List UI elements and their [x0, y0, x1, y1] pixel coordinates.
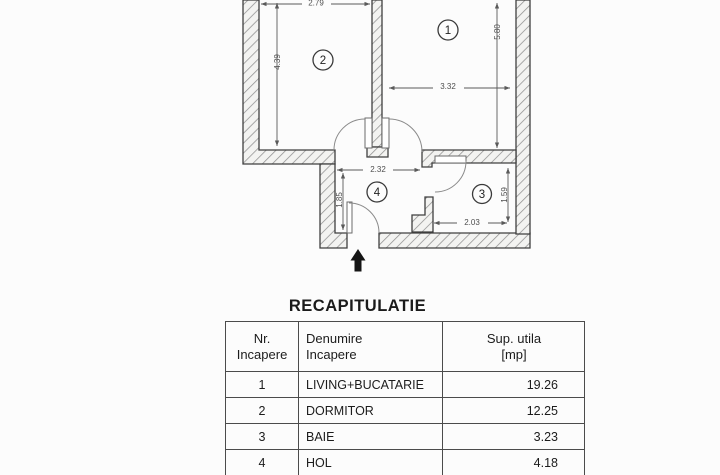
- table-row: 1 LIVING+BUCATARIE 19.26: [226, 372, 585, 398]
- wall-middle-partition: [372, 0, 382, 147]
- header-sup-utila: Sup. utila [mp]: [443, 322, 585, 372]
- dim-label-hol-width: 2.32: [370, 165, 386, 174]
- recap-title: RECAPITULATIE: [250, 297, 465, 316]
- cell-area: 19.26: [443, 372, 585, 398]
- table-row: 2 DORMITOR 12.25: [226, 398, 585, 424]
- table-row: 4 HOL 4.18: [226, 450, 585, 475]
- dim-label-living-height: 5.80: [493, 24, 502, 40]
- wall-exterior-left: [243, 0, 335, 164]
- door-leaf-living: [382, 118, 389, 148]
- floor-plan: 2.79 4.39 5.80 3.32 2.32 1.85 2.03 1.59 …: [0, 0, 720, 292]
- door-arc-living: [389, 119, 422, 152]
- wall-exterior-bottom: [379, 233, 530, 248]
- cell-nr: 3: [226, 424, 299, 450]
- header-line: Incapere: [306, 347, 441, 363]
- cell-nr: 2: [226, 398, 299, 424]
- header-line: Nr.: [227, 331, 297, 347]
- door-arc-entrance: [349, 203, 379, 233]
- door-leaf-dormitor: [365, 118, 372, 148]
- wall-baie-step: [412, 197, 433, 232]
- dim-label-living-width: 3.32: [440, 82, 456, 91]
- door-leaf-baie: [435, 156, 466, 163]
- header-denumire-incapere: Denumire Incapere: [299, 322, 443, 372]
- wall-exterior-right: [516, 0, 530, 234]
- scanned-floorplan-page: 2.79 4.39 5.80 3.32 2.32 1.85 2.03 1.59 …: [0, 0, 720, 475]
- door-arc-baie: [435, 161, 466, 192]
- header-line: Sup. utila: [444, 331, 584, 347]
- door-leaf-entrance: [347, 202, 352, 233]
- cell-name: DORMITOR: [299, 398, 443, 424]
- cell-name: LIVING+BUCATARIE: [299, 372, 443, 398]
- dim-label-dormitor-height: 4.39: [273, 54, 282, 70]
- door-arc-dormitor: [334, 119, 365, 150]
- cell-name: HOL: [299, 450, 443, 475]
- cell-area: 4.18: [443, 450, 585, 475]
- header-line: Incapere: [227, 347, 297, 363]
- room-number-living: 1: [445, 25, 451, 37]
- entrance-arrow-icon: [351, 249, 366, 272]
- recap-table: Nr. Incapere Denumire Incapere Sup. util…: [225, 321, 585, 475]
- header-nr-incapere: Nr. Incapere: [226, 322, 299, 372]
- room-number-hol: 4: [374, 187, 381, 199]
- dim-label-hol-height: 1.85: [335, 192, 344, 208]
- cell-nr: 1: [226, 372, 299, 398]
- header-line: Denumire: [306, 331, 441, 347]
- header-line: [mp]: [444, 347, 584, 363]
- cell-area: 12.25: [443, 398, 585, 424]
- dim-label-baie-width: 2.03: [464, 218, 480, 227]
- cell-name: BAIE: [299, 424, 443, 450]
- dim-label-baie-height: 1.59: [500, 187, 509, 203]
- cell-nr: 4: [226, 450, 299, 475]
- table-header-row: Nr. Incapere Denumire Incapere Sup. util…: [226, 322, 585, 372]
- dim-label-dormitor-width: 2.79: [308, 0, 324, 8]
- table-row: 3 BAIE 3.23: [226, 424, 585, 450]
- room-number-dormitor: 2: [320, 55, 326, 67]
- room-number-baie: 3: [479, 189, 485, 201]
- cell-area: 3.23: [443, 424, 585, 450]
